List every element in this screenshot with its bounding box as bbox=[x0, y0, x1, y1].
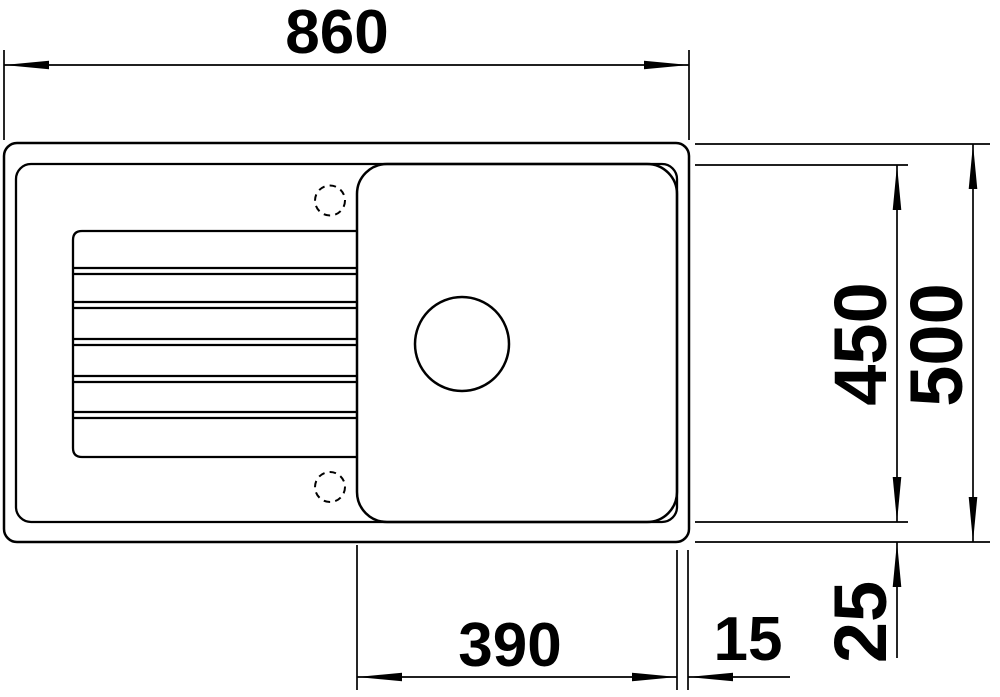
drain-hole bbox=[415, 297, 509, 391]
dim-label-right-rim: 15 bbox=[714, 605, 783, 674]
dim-overall-width: 860 bbox=[4, 0, 689, 140]
sink-technical-drawing: 860 450 500 25 390 15 bbox=[0, 0, 1000, 697]
dim-label-inner-depth: 450 bbox=[819, 282, 902, 405]
arrowhead-up bbox=[969, 144, 978, 189]
sink-bowl bbox=[357, 164, 677, 522]
arrowhead-down bbox=[893, 477, 902, 522]
arrowhead-left bbox=[357, 673, 402, 682]
sink-outer-edge bbox=[4, 143, 689, 542]
arrowhead-right bbox=[632, 673, 677, 682]
drainboard-grooves bbox=[73, 268, 357, 418]
dim-depths: 450 500 25 bbox=[695, 144, 990, 663]
arrowhead-down bbox=[969, 497, 978, 542]
dim-label-overall-depth: 500 bbox=[895, 283, 978, 406]
dim-label-bowl-width: 390 bbox=[458, 611, 561, 680]
arrowhead-right bbox=[644, 61, 689, 70]
arrowhead-left bbox=[4, 61, 49, 70]
arrowhead-up bbox=[893, 165, 902, 210]
arrowhead-up bbox=[893, 542, 902, 587]
drawing-svg: 860 450 500 25 390 15 bbox=[0, 0, 1000, 697]
tap-hole-bottom bbox=[315, 472, 345, 502]
dim-bowl: 390 15 bbox=[357, 545, 790, 690]
sink-body bbox=[4, 143, 689, 542]
sink-inner-edge bbox=[16, 164, 677, 522]
tap-hole-top bbox=[315, 186, 345, 216]
dim-label-overall-width: 860 bbox=[285, 0, 388, 67]
dim-label-bottom-rim: 25 bbox=[819, 581, 902, 663]
